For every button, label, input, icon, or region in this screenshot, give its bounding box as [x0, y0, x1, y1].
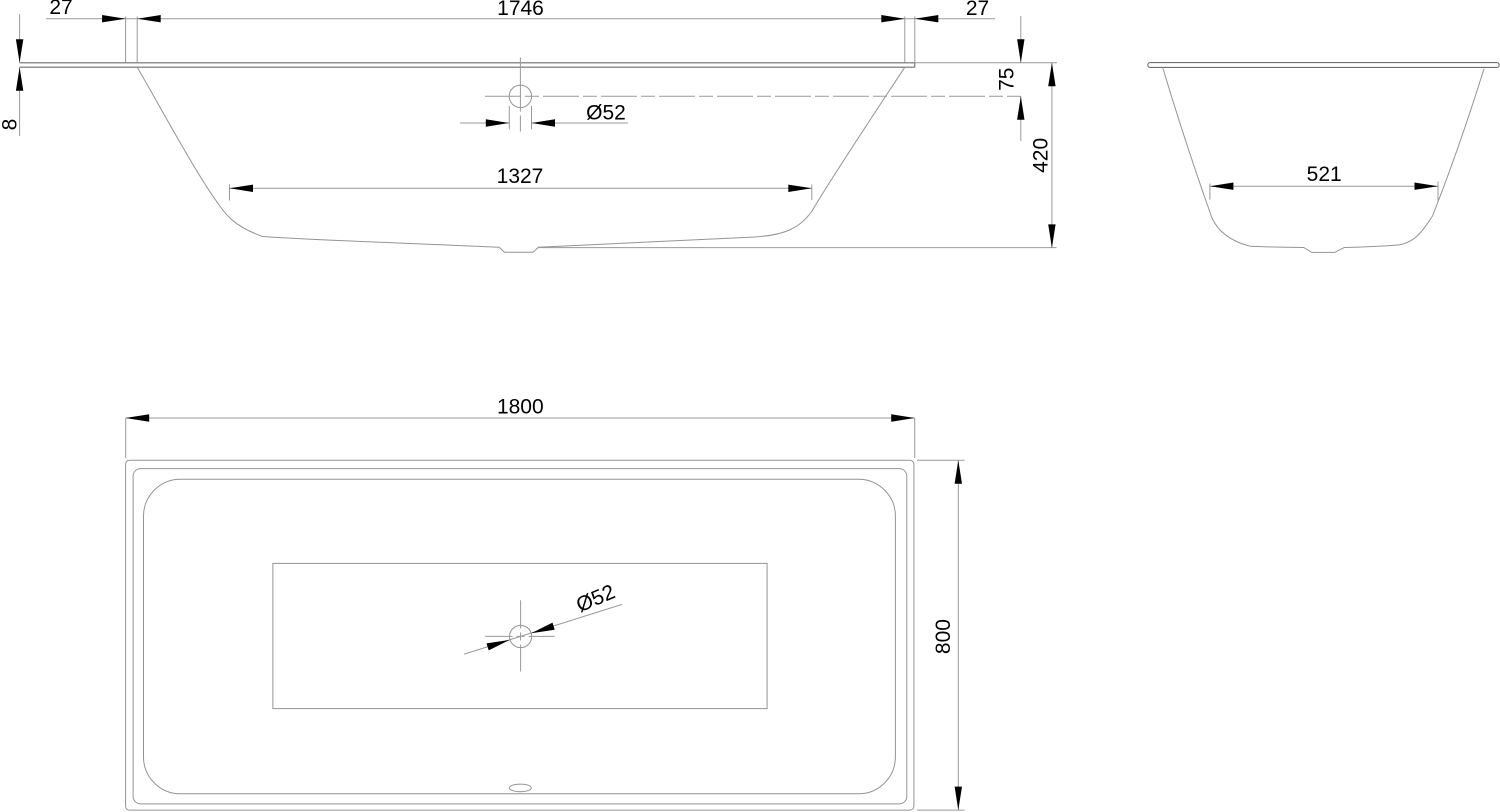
svg-text:1800: 1800 [497, 396, 544, 419]
svg-text:75: 75 [995, 68, 1018, 91]
svg-text:420: 420 [1030, 138, 1053, 173]
svg-text:800: 800 [932, 619, 955, 654]
svg-text:1746: 1746 [497, 0, 544, 20]
svg-text:521: 521 [1307, 163, 1342, 186]
svg-text:Ø52: Ø52 [586, 102, 626, 125]
svg-text:1327: 1327 [497, 165, 544, 188]
svg-text:8: 8 [0, 119, 21, 131]
svg-text:27: 27 [966, 0, 989, 20]
svg-text:27: 27 [49, 0, 72, 19]
